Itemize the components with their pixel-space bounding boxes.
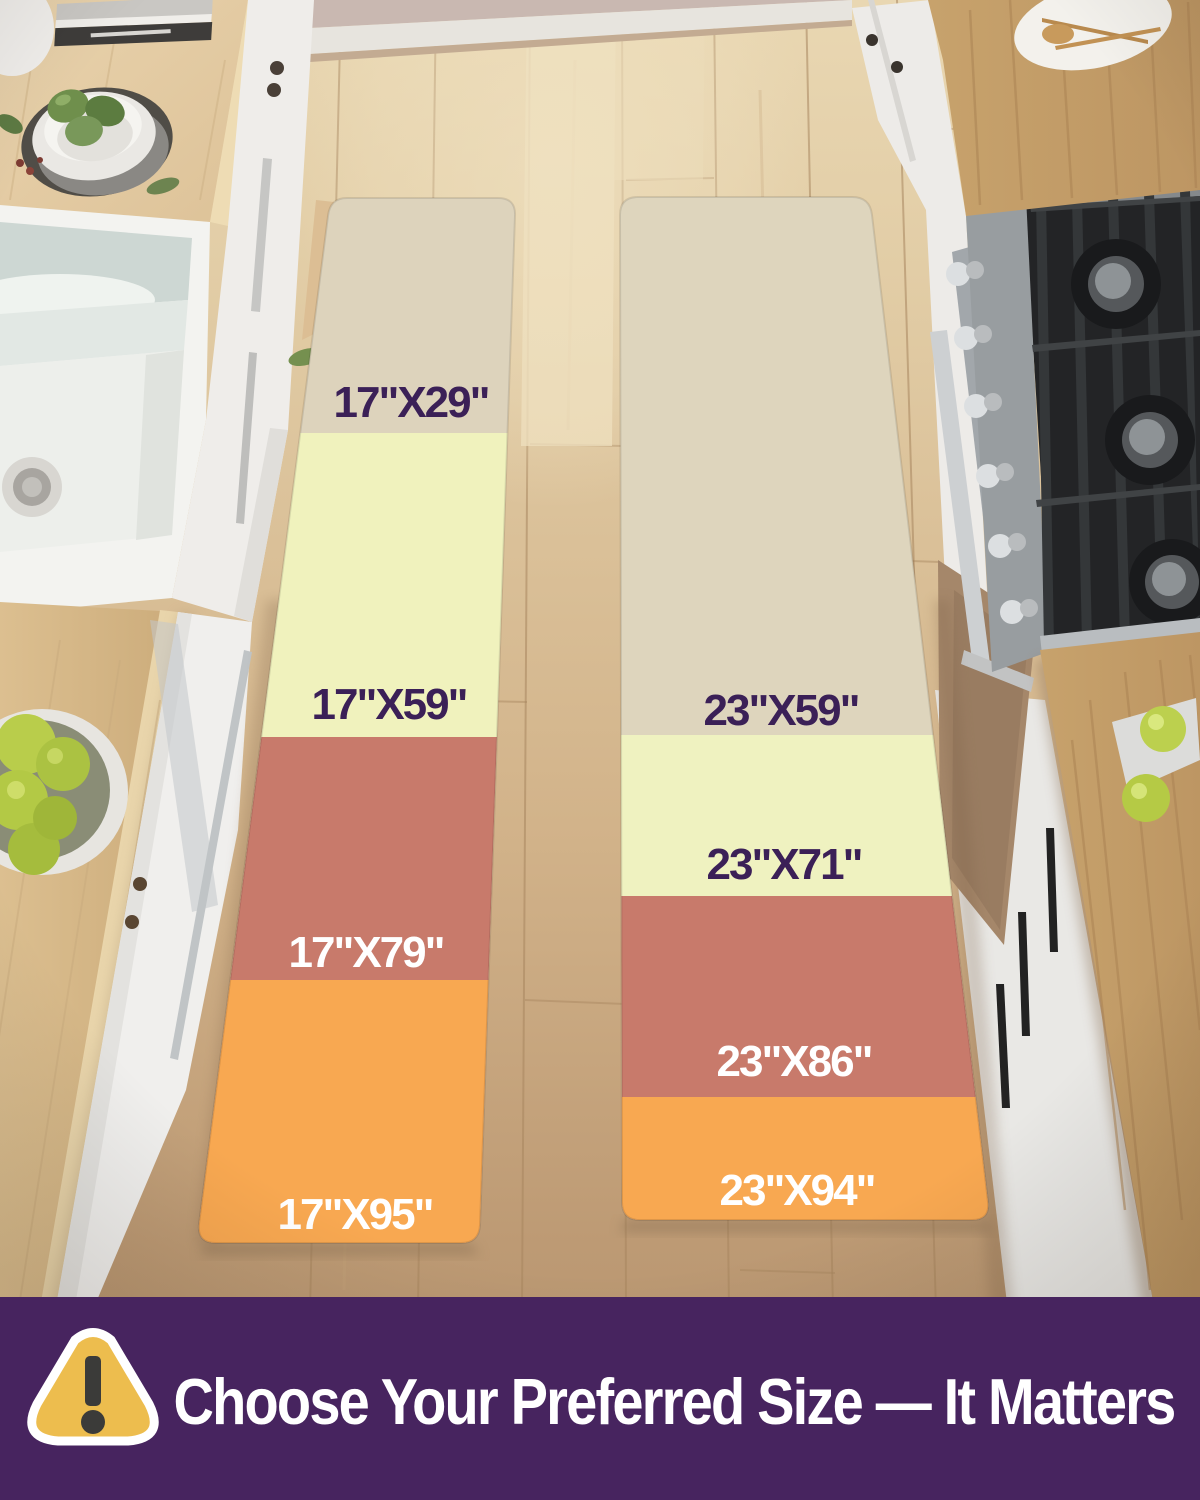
svg-text:Choose Your Preferred Size — I: Choose Your Preferred Size — It Matters: [174, 1365, 1175, 1438]
